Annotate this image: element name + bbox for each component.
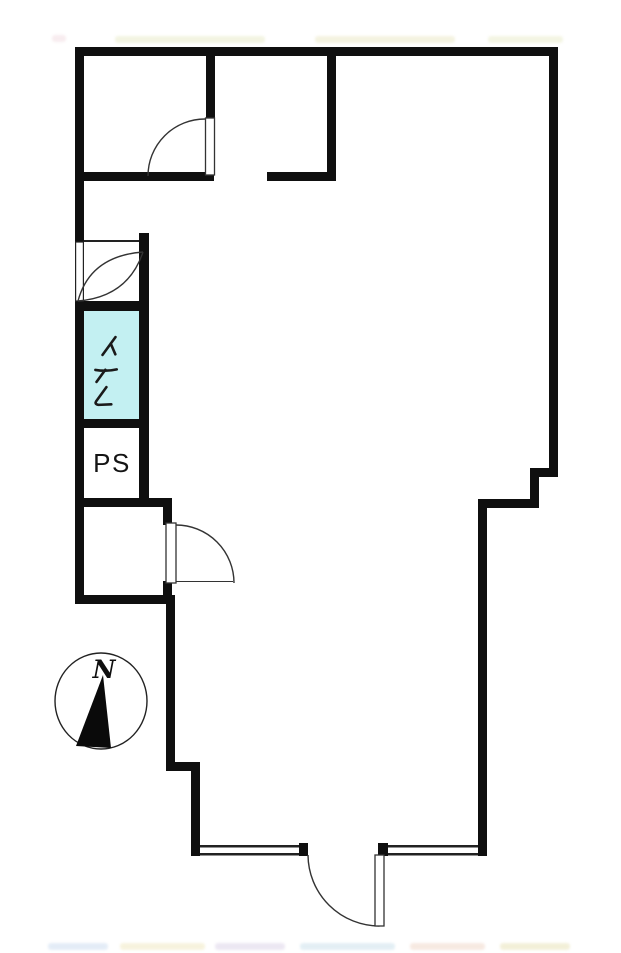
compass-needle-icon [76, 675, 111, 748]
wall-post [299, 843, 308, 856]
wall-segment [75, 47, 84, 242]
wall-segment [163, 498, 172, 525]
wall-segment [549, 47, 558, 477]
ps-label: PS [93, 448, 131, 478]
wall-line [387, 853, 478, 856]
window-icon [76, 242, 84, 301]
wall-segment [327, 47, 336, 180]
wall-line [200, 845, 300, 848]
wall-post [378, 843, 388, 856]
toilet-door-icon [78, 252, 143, 301]
edge-artifact [300, 943, 395, 950]
wall-segment [75, 172, 214, 181]
wall-line [387, 845, 478, 848]
door-swing-icon-entry [308, 855, 384, 926]
edge-artifact [48, 943, 108, 950]
wall-segment [166, 595, 175, 771]
edge-artifact [410, 943, 485, 950]
wall-segment [75, 419, 149, 428]
door-swing-icon-top-left-room [148, 118, 215, 176]
wall-segment [75, 595, 174, 604]
walls [75, 47, 558, 856]
edge-artifact [120, 943, 205, 950]
edge-artifact [500, 943, 570, 950]
wall-segment [75, 301, 149, 311]
floor-plan-drawing: PS N [0, 0, 621, 953]
toilet-room-fill [84, 311, 139, 419]
floor-plan: PS N [0, 0, 621, 953]
wall-segment [206, 47, 215, 118]
wall-segment [139, 233, 149, 507]
wall-line [84, 240, 139, 242]
wall-line [200, 853, 300, 856]
wall-segment [267, 172, 336, 181]
compass-rose: N [55, 653, 147, 749]
compass-north-label: N [92, 655, 117, 684]
wall-segment [478, 499, 539, 508]
door-swing-icon-closet [166, 523, 234, 583]
wall-segment [478, 499, 487, 856]
edge-artifact [215, 943, 285, 950]
wall-segment [75, 301, 84, 604]
wall-segment [75, 498, 172, 507]
wall-segment [191, 762, 200, 856]
wall-segment [75, 47, 558, 56]
